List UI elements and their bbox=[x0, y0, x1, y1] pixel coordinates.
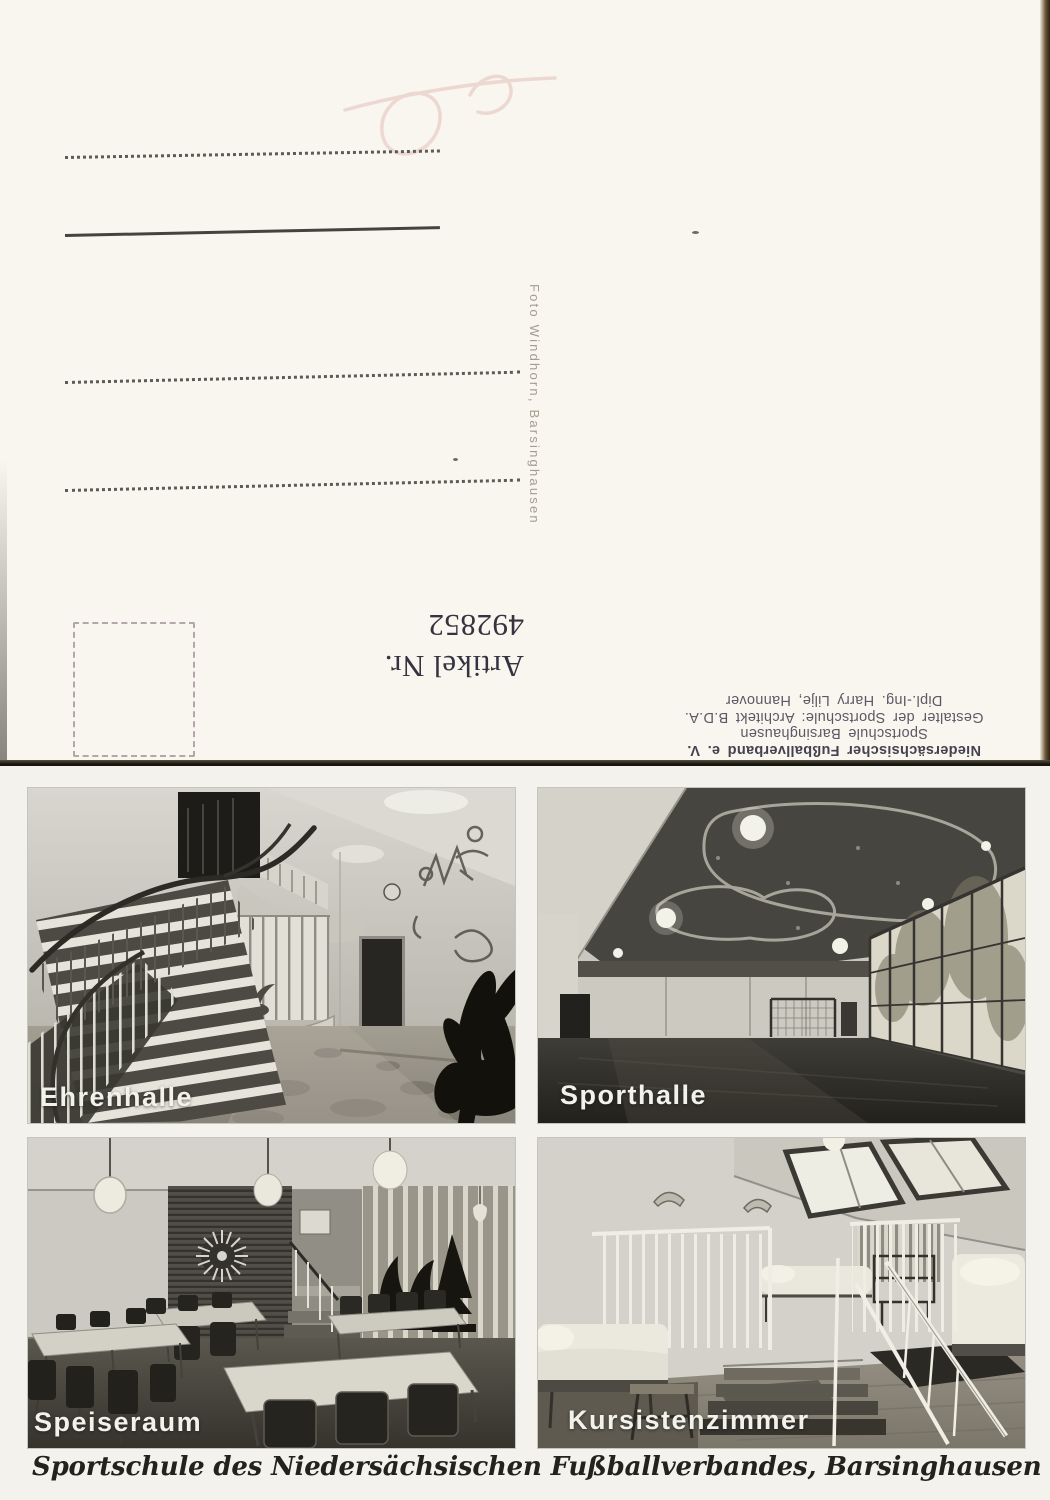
photo-label-ehrenhalle: Ehrenhalle bbox=[40, 1082, 193, 1113]
scan-right-edge bbox=[1040, 0, 1050, 766]
address-line-4 bbox=[65, 479, 520, 492]
article-number: 492852 bbox=[328, 605, 524, 646]
photo-sporthalle: Sporthalle bbox=[538, 788, 1025, 1123]
photo-speiseraum: Speiseraum bbox=[28, 1138, 515, 1448]
publisher-imprint: Niedersächsischer Fußballverband e. V. S… bbox=[648, 690, 1020, 758]
postcard-front: Ehrenhalle bbox=[0, 766, 1050, 1500]
photo-label-kursistenzimmer: Kursistenzimmer bbox=[568, 1405, 810, 1436]
photo-ehrenhalle: Ehrenhalle bbox=[28, 788, 515, 1123]
wall-clock bbox=[384, 884, 400, 900]
sporthalle-illustration bbox=[538, 788, 1025, 1123]
postcard-scan: Foto Windhorn, Barsinghausen Artikel Nr.… bbox=[0, 0, 1050, 1500]
publisher-line-3: Gestalter der Sportschule: Architekt B.D… bbox=[648, 709, 1020, 726]
publisher-line-2: Sportschule Barsinghausen bbox=[648, 725, 1020, 742]
kursistenzimmer-illustration bbox=[538, 1138, 1025, 1448]
postcard-back: Foto Windhorn, Barsinghausen Artikel Nr.… bbox=[0, 0, 1050, 766]
publisher-line-4: Dipl.-Ing. Harry Lilje, Hannover bbox=[648, 692, 1020, 709]
stamp-box bbox=[73, 622, 195, 757]
scan-speck-1 bbox=[692, 231, 699, 234]
publisher-line-1: Niedersächsischer Fußballverband e. V. bbox=[648, 742, 1020, 759]
photo-label-speiseraum: Speiseraum bbox=[34, 1407, 202, 1438]
address-line-2 bbox=[65, 226, 440, 237]
scan-left-edge bbox=[0, 0, 7, 766]
address-line-3 bbox=[65, 371, 520, 384]
handwritten-mark bbox=[320, 50, 580, 180]
photographer-credit: Foto Windhorn, Barsinghausen bbox=[527, 284, 542, 564]
scan-speck-2 bbox=[453, 458, 458, 461]
photo-label-sporthalle: Sporthalle bbox=[560, 1080, 707, 1111]
ehrenhalle-illustration bbox=[28, 788, 515, 1123]
front-caption: Sportschule des Niedersächsischen Fußbal… bbox=[32, 1452, 1041, 1482]
gym-door bbox=[560, 994, 590, 1038]
ceiling-light bbox=[384, 790, 468, 814]
photo-kursistenzimmer: Kursistenzimmer bbox=[538, 1138, 1025, 1448]
article-number-block: Artikel Nr. 492852 bbox=[328, 601, 524, 687]
article-label: Artikel Nr. bbox=[328, 646, 524, 687]
speiseraum-illustration bbox=[28, 1138, 515, 1448]
